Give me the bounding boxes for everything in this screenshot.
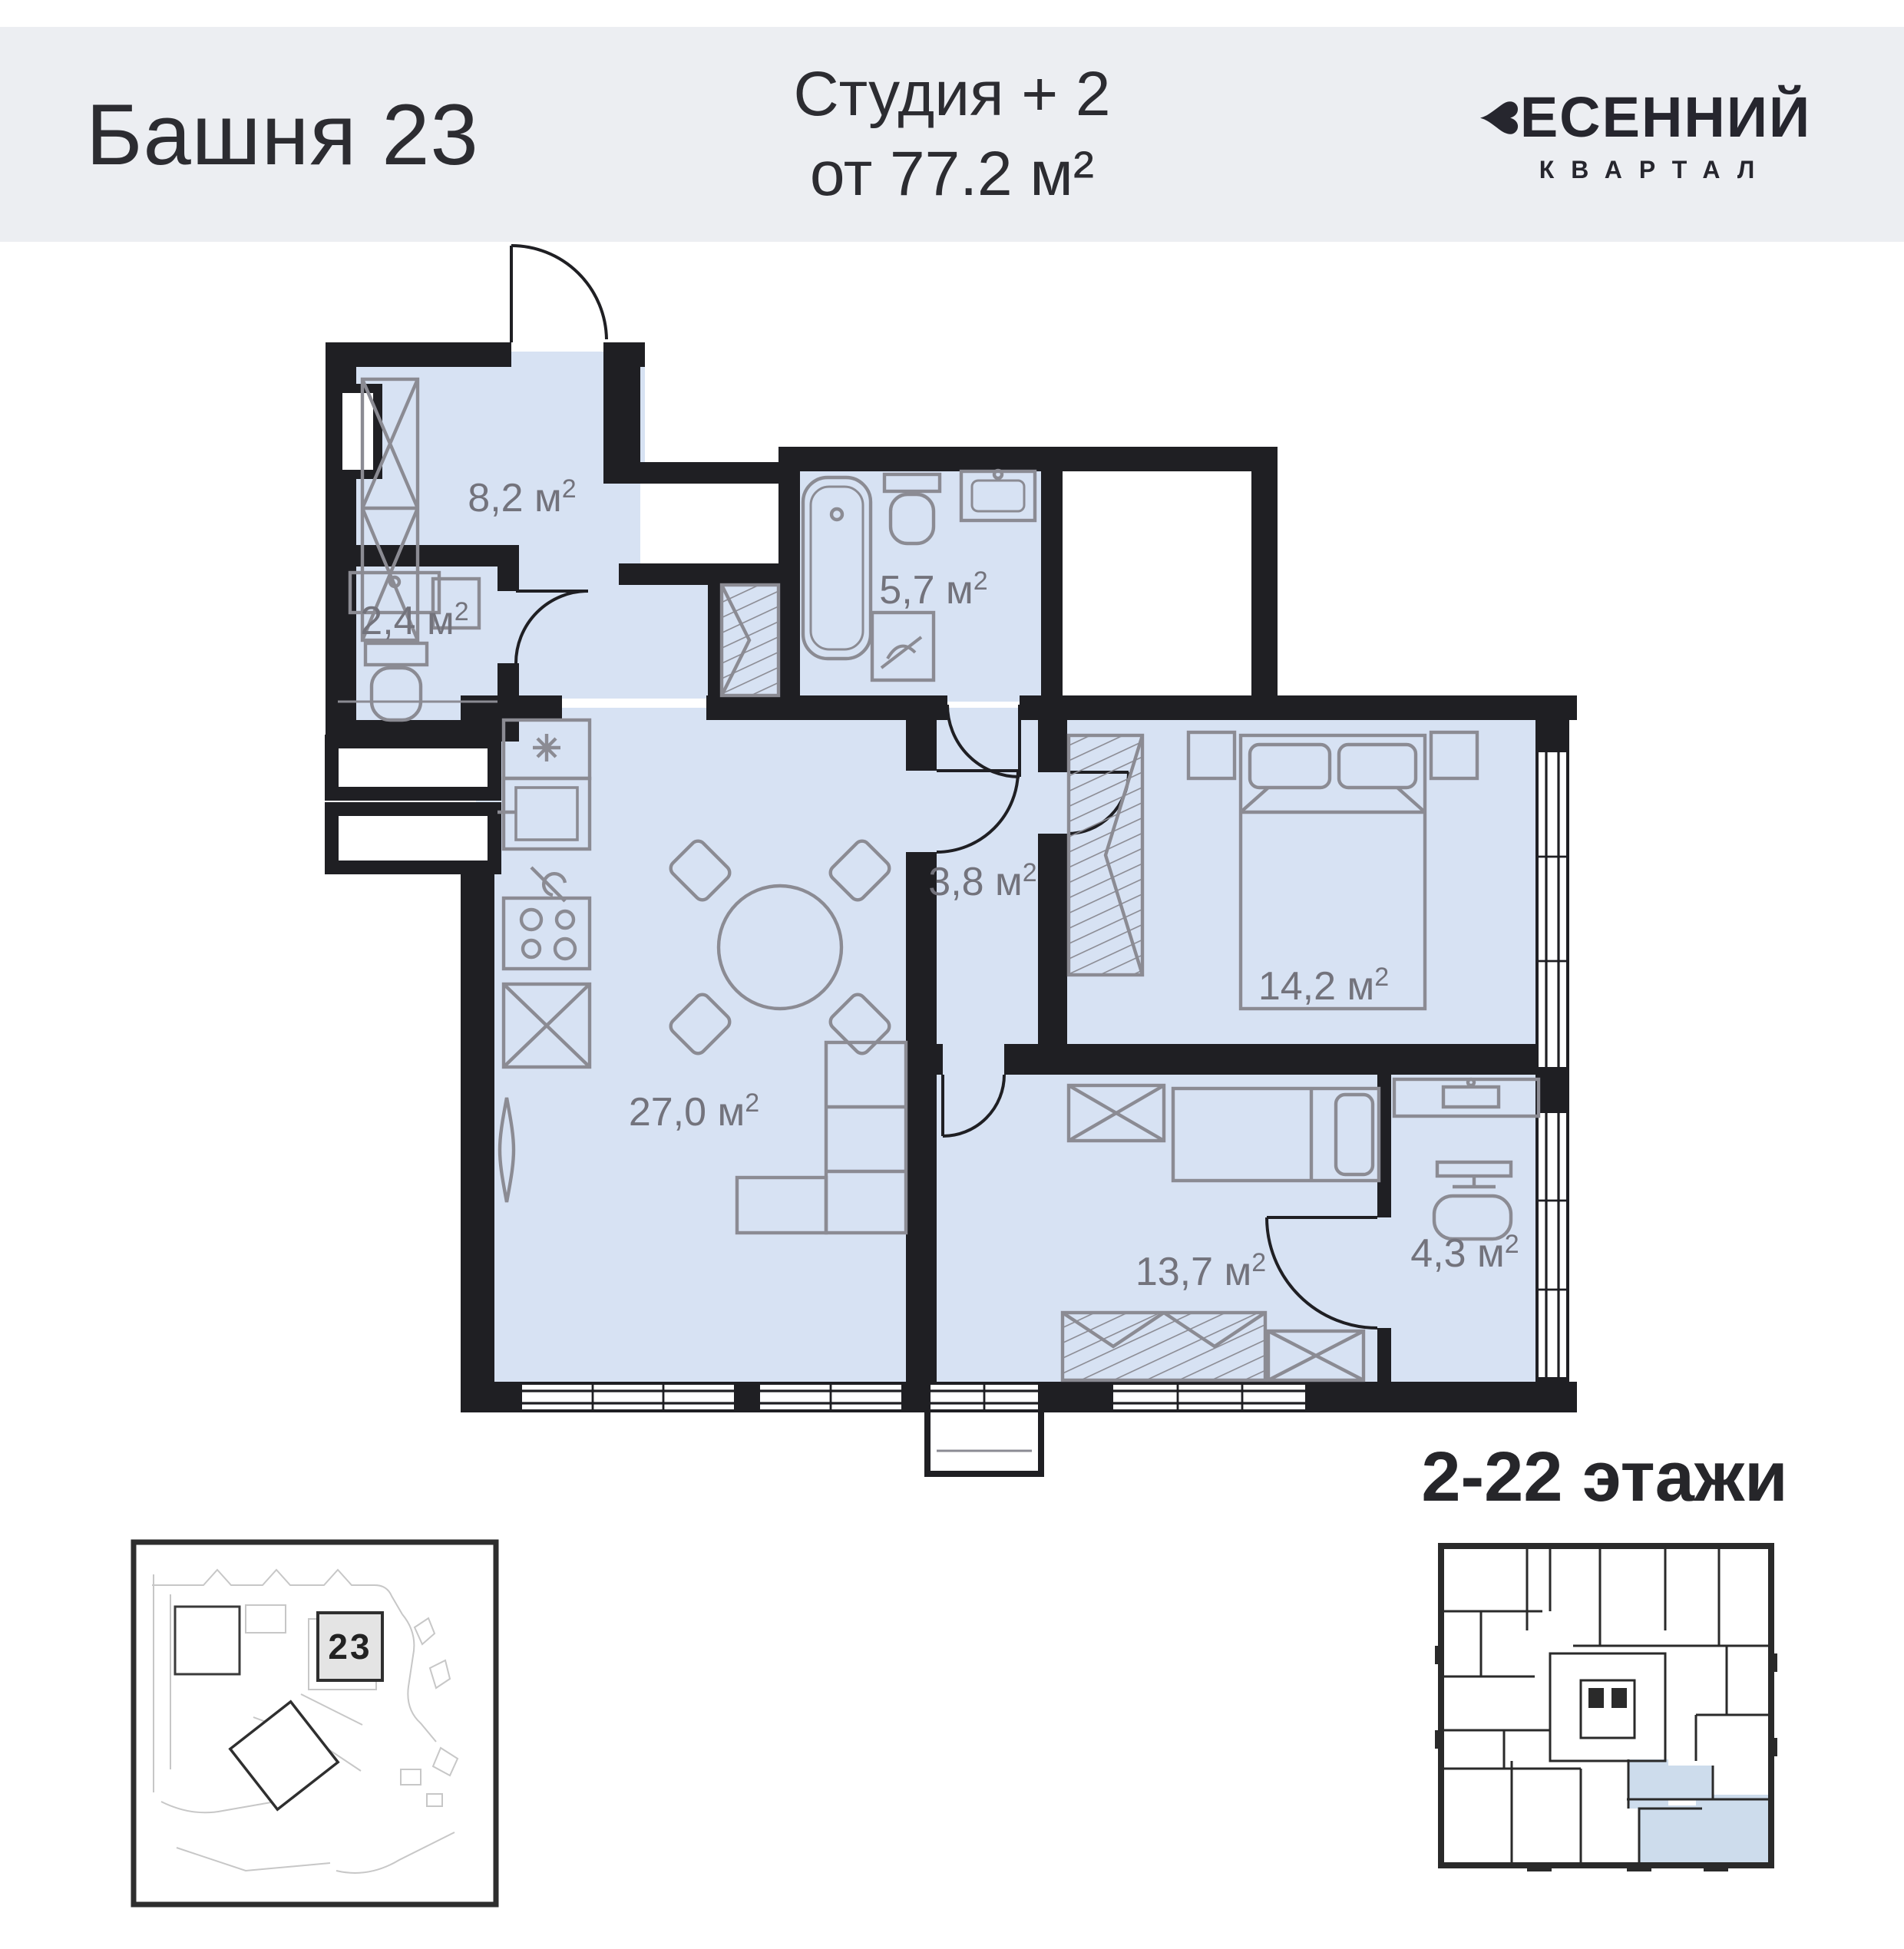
window-workspace bbox=[1539, 1113, 1566, 1377]
window-bedroom bbox=[1539, 752, 1566, 1067]
site-building-23: 23 bbox=[318, 1613, 382, 1680]
floor-plan-svg: 8,2 м2 2,4 м2 5,7 м2 3,8 м2 14,2 м2 27,0… bbox=[292, 177, 1643, 1528]
corridor-wardrobe-icon bbox=[722, 585, 778, 695]
key-plan bbox=[1435, 1538, 1777, 1884]
key-plan-svg bbox=[1435, 1538, 1777, 1884]
room-area-label: 3,8 м2 bbox=[928, 858, 1036, 904]
room-area-label: 14,2 м2 bbox=[1258, 963, 1389, 1009]
room-area-label: 4,3 м2 bbox=[1410, 1230, 1519, 1276]
site-building bbox=[175, 1607, 240, 1674]
site-map-frame bbox=[134, 1542, 496, 1904]
apartment-type: Студия + 2 bbox=[793, 60, 1110, 129]
window-living-2 bbox=[760, 1385, 901, 1409]
window-balcony-door bbox=[931, 1385, 1038, 1409]
room-area-label: 27,0 м2 bbox=[629, 1088, 759, 1135]
bedroom-2-wardrobe-icon bbox=[1063, 1313, 1265, 1380]
site-map-svg: 23 bbox=[131, 1539, 499, 1908]
floor-plan: 8,2 м2 2,4 м2 5,7 м2 3,8 м2 14,2 м2 27,0… bbox=[292, 177, 1643, 1528]
room-area-label: 13,7 м2 bbox=[1135, 1248, 1266, 1294]
room-area-label: 2,4 м2 bbox=[360, 597, 468, 643]
floors-range-label: 2-22 этажи bbox=[1405, 1437, 1804, 1518]
site-map: 23 bbox=[131, 1539, 499, 1908]
window-living-1 bbox=[522, 1385, 734, 1409]
bedroom-wardrobe-icon bbox=[1069, 735, 1142, 975]
window-bedroom-2 bbox=[1113, 1385, 1305, 1409]
room-area-label: 8,2 м2 bbox=[468, 474, 576, 520]
brand-name: ♥ЕСЕННИЙ bbox=[1483, 84, 1811, 150]
room-area-label: 5,7 м2 bbox=[879, 567, 987, 613]
brand-name-text: ЕСЕННИЙ bbox=[1520, 84, 1811, 150]
site-building-number: 23 bbox=[328, 1627, 372, 1667]
heart-icon: ♥ bbox=[1476, 98, 1529, 139]
entry-door bbox=[511, 246, 607, 342]
